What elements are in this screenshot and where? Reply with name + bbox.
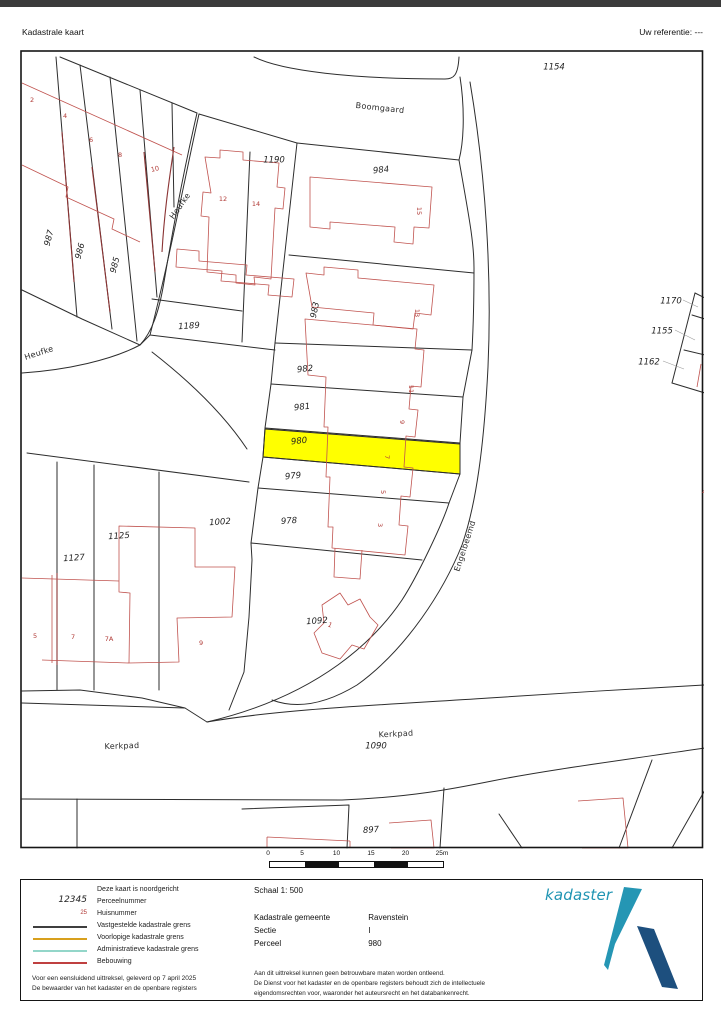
legend-label: Administratieve kadastrale grens	[97, 946, 199, 953]
legend-label: Perceelnummer	[97, 898, 146, 905]
map-label-parcel-1162: 1162	[638, 358, 660, 368]
map-label-street-Kerkpad: Kerkpad	[378, 729, 413, 740]
legend-row-building: Bebouwing	[21, 957, 251, 969]
scale-bar: 0 5 10 15 20 25m	[249, 850, 464, 870]
map-label-house-10: 10	[150, 164, 160, 174]
map-label-house-9: 9	[398, 420, 406, 424]
building-line-sample	[33, 962, 87, 964]
map-label-house-5: 5	[33, 632, 37, 640]
map-label-house-7: 7	[383, 455, 391, 459]
scale-label: Schaal 1: 500	[254, 886, 303, 895]
map-label-house-4: 4	[702, 488, 704, 496]
map-label-street-Engelbeemd: Engelbeemd	[453, 519, 478, 572]
page-title: Kadastrale kaart	[22, 27, 84, 37]
map-label-street-Boomgaard: Boomgaard	[355, 101, 405, 115]
map-label-house-15: 15	[415, 207, 423, 215]
map-label-street-Heufke: Heufke	[23, 344, 54, 362]
established-boundary-line-sample	[33, 926, 87, 928]
administrative-boundary-line-sample	[33, 950, 87, 952]
map-label-parcel-982: 982	[296, 364, 313, 376]
map-label-parcel-1155: 1155	[651, 327, 673, 337]
scale-bar-segments	[269, 861, 444, 868]
map-label-house-8: 8	[118, 151, 122, 159]
detail-value: 980	[368, 939, 381, 948]
detail-row-gemeente: Kadastrale gemeente Ravenstein	[254, 913, 408, 922]
map-label-parcel-978: 978	[281, 516, 298, 527]
legend-row-provisional-boundary: Voorlopige kadastrale grens	[21, 933, 251, 945]
scale-tick: 25m	[436, 850, 449, 857]
legend-label: Huisnummer	[97, 910, 137, 917]
map-label-house-3: 3	[376, 523, 384, 527]
scale-tick: 10	[333, 850, 340, 857]
map-label-street-Kerkpad: Kerkpad	[104, 741, 139, 751]
map-label-parcel-984: 984	[372, 165, 389, 177]
map-label-parcel-981: 981	[293, 402, 310, 414]
map-label-parcel-980: 980	[290, 436, 307, 448]
legend-row-house-number: 25 Huisnummer	[21, 909, 251, 921]
map-label-parcel-1002: 1002	[209, 517, 231, 528]
map-label-house-14: 14	[252, 200, 260, 208]
scale-tick: 20	[402, 850, 409, 857]
kadaster-logo-icon	[591, 882, 691, 998]
legend-row-parcel-number: 12345 Perceelnummer	[21, 897, 251, 909]
disclaimer-line-3: eigendomsrechten voor, waaronder het aut…	[254, 989, 485, 999]
scale-tick: 0	[266, 850, 270, 857]
map-label-parcel-1154: 1154	[543, 63, 565, 73]
map-label-parcel-986: 986	[74, 241, 88, 260]
legend-label: Vastgestelde kadastrale grens	[97, 922, 191, 929]
cadastral-map: 1154119011899849839829819809799781092100…	[20, 50, 704, 849]
detail-label: Perceel	[254, 939, 366, 948]
map-label-parcel-1127: 1127	[63, 553, 86, 565]
legend-label: Bebouwing	[97, 958, 132, 965]
detail-value: I	[368, 926, 370, 935]
logo-navy-stroke	[637, 926, 678, 989]
scale-tick: 15	[367, 850, 374, 857]
map-label-parcel-1090: 1090	[365, 742, 387, 752]
map-label-parcel-1189: 1189	[178, 321, 200, 332]
disclaimer-line-1: Aan dit uittreksel kunnen geen betrouwba…	[254, 969, 485, 979]
map-label-parcel-979: 979	[284, 471, 301, 483]
map-label-house-13: 13	[413, 309, 421, 317]
scale-tick: 5	[300, 850, 304, 857]
map-label-house-6: 6	[89, 136, 93, 144]
map-label-house-7: 7	[71, 633, 75, 641]
logo-teal-stroke	[604, 887, 642, 970]
map-label-house-7A: 7A	[105, 635, 114, 643]
map-label-house-4: 4	[63, 112, 67, 120]
legend-row-north: Deze kaart is noordgericht	[21, 885, 251, 897]
detail-label: Kadastrale gemeente	[254, 913, 366, 922]
map-label-parcel-987: 987	[43, 228, 57, 247]
map-label-house-5: 5	[379, 490, 387, 494]
detail-label: Sectie	[254, 926, 366, 935]
map-label-parcel-1190: 1190	[263, 156, 285, 166]
extract-footer: Voor een eensluidend uittreksel, gelever…	[32, 974, 197, 994]
disclaimer: Aan dit uittreksel kunnen geen betrouwba…	[254, 969, 485, 999]
map-label-house-11: 11	[407, 385, 415, 393]
window-top-bar	[0, 0, 721, 7]
dark-red-boundaries	[57, 132, 174, 665]
map-label-house-12: 12	[219, 195, 227, 203]
legend-row-administrative-boundary: Administratieve kadastrale grens	[21, 945, 251, 957]
detail-row-perceel: Perceel 980	[254, 939, 382, 948]
map-label-parcel-897: 897	[363, 825, 380, 836]
detail-row-sectie: Sectie I	[254, 926, 370, 935]
legend-label: Voorlopige kadastrale grens	[97, 934, 184, 941]
footer-line-1: Voor een eensluidend uittreksel, gelever…	[32, 974, 197, 984]
map-label-parcel-1125: 1125	[108, 531, 130, 542]
legend-row-established-boundary: Vastgestelde kadastrale grens	[21, 921, 251, 933]
legend-box: Deze kaart is noordgericht 12345 Perceel…	[20, 879, 703, 1001]
map-label-parcel-985: 985	[109, 256, 123, 274]
map-label-house-2: 2	[30, 96, 34, 104]
north-note: Deze kaart is noordgericht	[97, 886, 179, 893]
map-label-house-9: 9	[199, 639, 203, 647]
provisional-boundary-line-sample	[33, 938, 87, 940]
parcel-number-sample: 12345	[58, 895, 87, 905]
footer-line-2: De bewaarder van het kadaster en de open…	[32, 984, 197, 994]
map-label-parcel-1170: 1170	[660, 297, 682, 307]
house-number-sample: 25	[80, 910, 87, 916]
disclaimer-line-2: De Dienst voor het kadaster en de openba…	[254, 979, 485, 989]
cadastral-map-document: { "header": { "title": "Kadastrale kaart…	[0, 0, 721, 1024]
detail-value: Ravenstein	[368, 913, 408, 922]
reference-label: Uw referentie: ---	[639, 27, 703, 37]
map-label-parcel-983: 983	[309, 301, 322, 319]
map-label-parcel-1092: 1092	[306, 616, 328, 627]
